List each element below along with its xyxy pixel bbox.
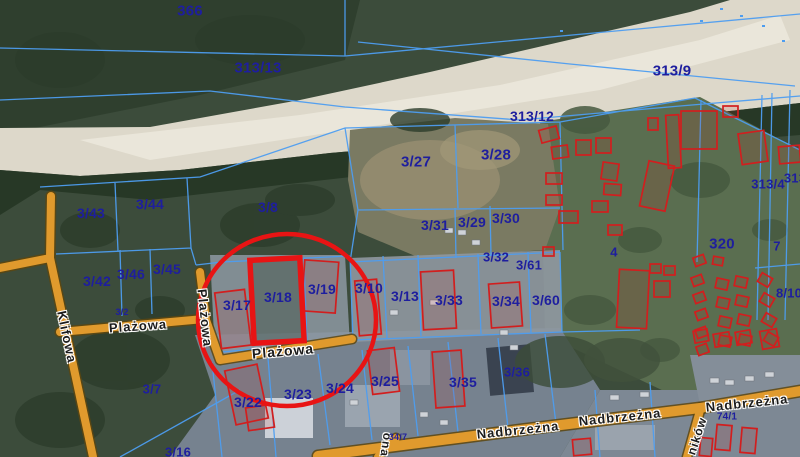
parcel-label: 3/32 bbox=[483, 250, 509, 265]
parcel-label: 3/16 bbox=[165, 445, 191, 457]
building-outline bbox=[601, 162, 619, 181]
parcel-label: 3/27 bbox=[401, 154, 431, 171]
parcel-label: 3/45 bbox=[153, 261, 181, 277]
urban-trees bbox=[584, 338, 660, 382]
building-outline bbox=[576, 140, 591, 155]
building-outline bbox=[608, 225, 622, 235]
building-outline bbox=[715, 424, 732, 450]
building-outline bbox=[559, 211, 578, 223]
building-outline bbox=[543, 247, 554, 256]
cadastral-map[interactable]: PlażowaPlażowaPlażowaKlifowaNadbrzeżnaNa… bbox=[0, 0, 800, 457]
building-outline bbox=[740, 427, 757, 453]
building-outline bbox=[551, 145, 569, 159]
parcel-label: 3/43 bbox=[77, 205, 105, 221]
parcel-label: 313/9 bbox=[653, 63, 692, 80]
parcel-label: 7 bbox=[773, 239, 780, 254]
building-outline bbox=[712, 256, 723, 266]
parcel-label: 3/35 bbox=[449, 374, 477, 390]
building-outline bbox=[664, 266, 675, 275]
parcel-label: 34/7 bbox=[389, 432, 407, 442]
parcel-label: 3/28 bbox=[481, 147, 511, 164]
building-outline bbox=[778, 145, 800, 164]
building-outline bbox=[734, 276, 748, 288]
parcel-label: 3/44 bbox=[136, 196, 164, 212]
building-outline bbox=[648, 118, 658, 130]
building-outline bbox=[735, 330, 752, 345]
parcel-label: 313/12 bbox=[510, 108, 554, 124]
building-outline bbox=[760, 329, 780, 350]
parcel-label: 74/1 bbox=[717, 412, 737, 423]
building-outline bbox=[735, 295, 749, 307]
building-outline bbox=[715, 278, 729, 290]
building-outline bbox=[654, 281, 670, 297]
building-outline bbox=[718, 316, 732, 328]
light-lot bbox=[595, 425, 655, 450]
parcel-label: 3/61 bbox=[516, 258, 542, 273]
building-outline bbox=[592, 201, 608, 212]
parcel-label: 313/13 bbox=[234, 60, 281, 77]
parcel-label: 3/60 bbox=[532, 292, 560, 308]
parcel-label: 3/8 bbox=[258, 199, 278, 215]
building-outline bbox=[693, 329, 709, 343]
parcel-label: 3/30 bbox=[492, 210, 520, 226]
building-outline bbox=[681, 111, 717, 149]
building-outline bbox=[617, 269, 650, 328]
parcel-label: 313 bbox=[784, 171, 800, 186]
building-outline bbox=[546, 173, 562, 184]
building-outline bbox=[738, 130, 768, 164]
parcel-label: 3/24 bbox=[326, 380, 354, 396]
parcel-label: 3/25 bbox=[371, 373, 399, 389]
parcel-label: 3/2 bbox=[115, 307, 128, 317]
building-outline bbox=[572, 438, 591, 456]
parcel-label: 3/42 bbox=[83, 273, 111, 289]
parcel-label: 366 bbox=[177, 3, 203, 20]
parcel-label: 3/10 bbox=[355, 280, 383, 296]
building-outline bbox=[596, 138, 611, 153]
parcel-label: 3/19 bbox=[308, 281, 336, 297]
parcel-label: 3/29 bbox=[458, 214, 486, 230]
parcel-label: 3/34 bbox=[492, 293, 520, 309]
parcel-label: 3/7 bbox=[143, 382, 162, 397]
parcel-label: 3/31 bbox=[421, 217, 449, 233]
parcel-label: 3/17 bbox=[223, 297, 251, 313]
parcel-label: 3/33 bbox=[435, 292, 463, 308]
building-outline bbox=[546, 195, 562, 205]
parcel-label: 320 bbox=[709, 236, 735, 253]
building-outline bbox=[723, 106, 738, 117]
building-outline bbox=[650, 264, 661, 273]
building-outline bbox=[737, 314, 751, 326]
parcel-label: 3/23 bbox=[284, 386, 312, 402]
building-outline bbox=[716, 297, 730, 309]
parcel-label: 4 bbox=[610, 245, 617, 260]
parcel-label: 3/18 bbox=[264, 289, 292, 305]
parcel-label: 313/4 bbox=[751, 177, 785, 192]
parcel-label: 8/10 bbox=[776, 286, 800, 301]
parcel-label: 3/46 bbox=[117, 266, 145, 282]
building-outline bbox=[604, 183, 622, 195]
parcel-label: 3/36 bbox=[504, 365, 530, 380]
parcel-label: 3/22 bbox=[234, 394, 262, 410]
building-outline bbox=[713, 332, 731, 348]
parcel-label: 3/13 bbox=[391, 288, 419, 304]
building-outline bbox=[666, 115, 682, 169]
